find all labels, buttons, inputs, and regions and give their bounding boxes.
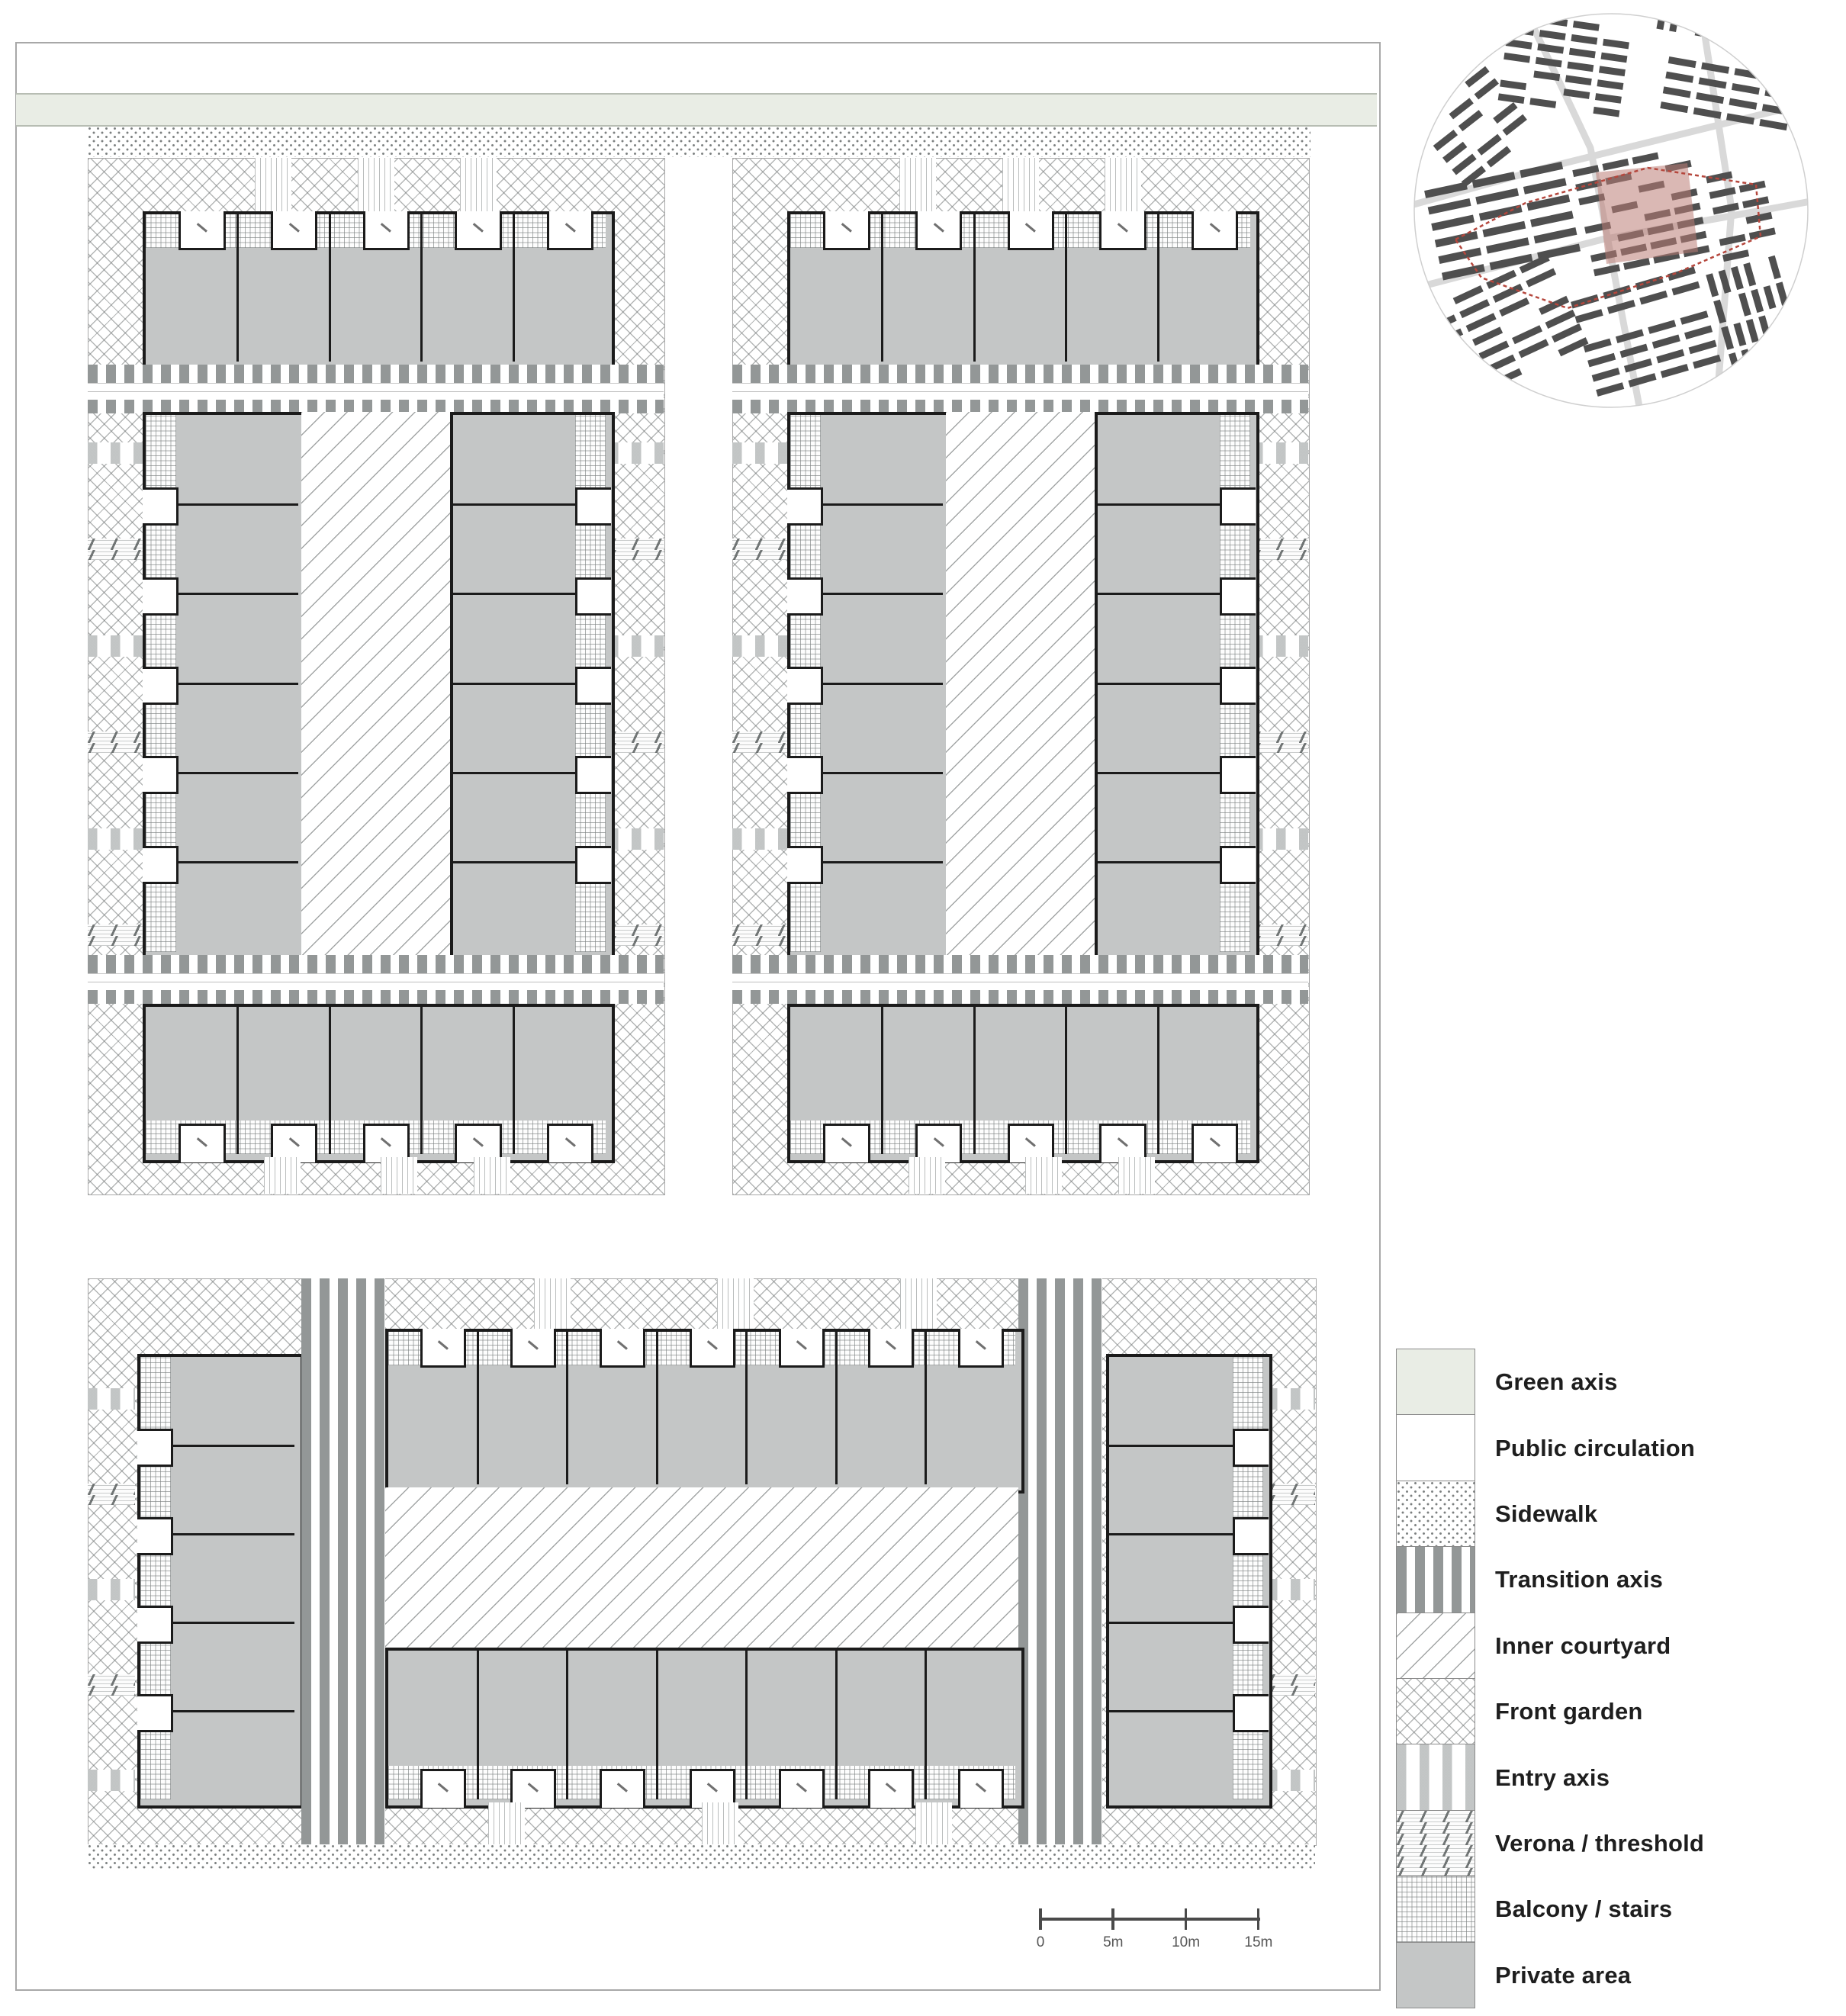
entry-axis-patch [732,828,787,850]
entry-recess [547,211,593,250]
entry-recess [575,577,611,616]
unit-divider [925,1332,927,1484]
entry-path [1002,158,1039,211]
entry-path [702,1802,738,1844]
legend-swatch-pub [1396,1414,1475,1481]
inner-courtyard-upper-right [946,412,1095,955]
entry-tick [976,1783,986,1792]
entry-tick [1025,223,1036,232]
transition-axis [732,365,1308,383]
entry-path [534,1278,571,1329]
legend-item-entry: Entry axis [1396,1744,1838,1810]
entry-axis-patch [609,828,664,850]
verona-threshold-patch [88,924,143,946]
entry-recess [1233,1429,1269,1467]
entry-recess [779,1329,825,1368]
legend-item-verona: Verona / threshold [1396,1811,1838,1876]
entry-recess [1220,667,1256,705]
unit-divider [881,214,883,362]
public-circulation [88,383,664,401]
unit-divider [420,214,423,362]
entry-recess [823,1124,870,1162]
entry-recess [575,487,611,526]
unit-divider [1157,214,1159,362]
entry-tick [438,1783,449,1792]
unit-divider [835,1332,838,1484]
entry-recess [1233,1606,1269,1644]
public-circulation [732,973,1308,992]
entry-tick [197,223,207,232]
entry-recess [137,1606,173,1644]
entry-axis-patch [609,442,664,464]
entry-recess [600,1769,645,1808]
unit-divider [329,214,331,362]
scale-label: 5m [1103,1934,1123,1951]
entry-recess [420,1769,466,1808]
entry-path [909,1157,945,1194]
entry-recess [1220,756,1256,794]
sidewalk-band-bottom [88,1844,1315,1870]
legend-swatch-trans [1396,1546,1475,1612]
unit-divider [881,1007,883,1154]
entry-path [358,158,394,211]
entry-axis-patch [732,635,787,657]
row-top-upper-right [787,211,1259,371]
unit-divider [1065,214,1067,362]
verona-threshold-patch [88,539,143,560]
transition-axis [88,365,664,383]
entry-recess [787,667,823,705]
entry-axis-patch [88,828,143,850]
entry-recess [455,211,501,250]
entry-recess [575,846,611,884]
entry-recess [137,1694,173,1732]
entry-path [474,1157,510,1194]
entry-recess [363,211,410,250]
legend-label: Entry axis [1475,1744,1610,1810]
entry-tick [1210,223,1220,232]
entry-tick [617,1783,628,1792]
row-top-lower [385,1329,1024,1494]
entry-tick [934,1137,944,1146]
entry-tick [289,1137,300,1146]
transition-axis [732,990,1308,1004]
entry-tick [565,223,576,232]
site-plan-page: Green axisPublic circulationSidewalkTran… [0,0,1846,2016]
entry-recess [1192,211,1238,250]
unit-divider [566,1651,568,1799]
entry-recess [143,487,178,526]
entry-axis-patch [88,635,143,657]
entry-axis-patch [1253,828,1308,850]
legend-swatch-xh [1396,1678,1475,1744]
unit-divider [925,1651,927,1799]
entry-tick [473,1137,484,1146]
entry-recess [787,487,823,526]
unit-divider [835,1651,838,1799]
entry-recess [868,1329,914,1368]
row-bottom-upper-left [143,1004,615,1163]
unit-divider [1065,1007,1067,1154]
legend-item-sidewalk: Sidewalk [1396,1481,1838,1547]
legend-swatch-green [1396,1349,1475,1415]
entry-path [717,1278,754,1329]
entry-recess [1008,211,1054,250]
entry-recess [690,1329,735,1368]
inner-courtyard-upper-left [301,412,450,955]
context-map [1411,11,1811,410]
inner-courtyard-lower [385,1487,1018,1648]
verona-threshold-patch [1268,1484,1315,1505]
entry-tick [289,223,300,232]
legend-swatch-priv [1396,1942,1475,2008]
entry-recess [1220,577,1256,616]
entry-tick [886,1783,896,1792]
verona-threshold-patch [609,731,664,753]
balcony-stairs-strip [1233,1357,1263,1799]
entry-path [1118,1157,1155,1194]
entry-recess [787,846,823,884]
entry-recess [868,1769,914,1808]
unit-divider [1157,1007,1159,1154]
entry-tick [707,1783,718,1792]
legend-swatch-entry [1396,1744,1475,1810]
wing-right-upper-right [1095,412,1259,961]
unit-divider [513,1007,515,1154]
legend-item-priv: Private area [1396,1943,1838,2008]
entry-recess [958,1329,1004,1368]
legend-label: Green axis [1475,1349,1618,1415]
entry-tick [381,1137,391,1146]
wing-right-lower [1106,1354,1272,1809]
entry-tick [565,1137,576,1146]
entry-recess [1099,211,1146,250]
entry-recess [1192,1124,1238,1162]
legend-label: Verona / threshold [1475,1811,1704,1876]
entry-recess [143,577,178,616]
entry-axis-patch [88,442,143,464]
entry-recess [271,211,317,250]
entry-recess [420,1329,466,1368]
verona-threshold-patch [732,731,787,753]
entry-tick [976,1340,986,1349]
entry-tick [707,1340,718,1349]
verona-threshold-patch [88,1674,135,1696]
entry-tick [886,1340,896,1349]
entry-path [899,158,936,211]
unit-divider [420,1007,423,1154]
entry-tick [381,223,391,232]
entry-recess [137,1517,173,1555]
legend-item-xh: Front garden [1396,1679,1838,1744]
entry-tick [617,1340,628,1349]
unit-divider [566,1332,568,1484]
unit-divider [745,1332,748,1484]
transition-axis [88,990,664,1004]
green-axis-band [16,93,1377,127]
legend-label: Inner courtyard [1475,1613,1671,1679]
entry-recess [575,667,611,705]
entry-recess [1233,1694,1269,1732]
scale-tick [1185,1908,1188,1930]
legend-label: Sidewalk [1475,1481,1597,1547]
entry-path [915,1802,952,1844]
balcony-stairs-strip [140,1357,171,1799]
entry-path [255,158,291,211]
entry-recess [779,1769,825,1808]
entry-axis-patch [88,1388,135,1410]
unit-divider [745,1651,748,1799]
entry-axis-patch [1268,1388,1315,1410]
transition-axis-vertical [1018,1278,1102,1844]
legend-label: Private area [1475,1943,1631,2008]
verona-threshold-patch [1253,924,1308,946]
street-centerline [732,982,1308,982]
entry-path [488,1802,525,1844]
entry-recess [143,667,178,705]
legend-label: Public circulation [1475,1415,1695,1481]
entry-path [264,1157,301,1194]
legend-swatch-balc [1396,1876,1475,1942]
verona-threshold-patch [609,539,664,560]
public-circulation [88,973,664,992]
legend-swatch-sidewalk [1396,1481,1475,1547]
verona-threshold-patch [1253,731,1308,753]
entry-axis-patch [88,1579,135,1600]
unit-divider [477,1651,479,1799]
entry-axis-patch [1253,635,1308,657]
public-circulation [732,383,1308,401]
scale-label: 10m [1172,1934,1200,1951]
legend-label: Balcony / stairs [1475,1876,1672,1942]
entry-axis-patch [88,1770,135,1791]
entry-tick [841,1137,852,1146]
scale-tick [1039,1908,1042,1930]
entry-recess [1233,1517,1269,1555]
entry-tick [796,1340,807,1349]
entry-recess [143,846,178,884]
legend-item-court: Inner courtyard [1396,1613,1838,1679]
verona-threshold-patch [88,1484,135,1505]
legend-label: Transition axis [1475,1547,1663,1612]
entry-tick [528,1783,539,1792]
scale-tick [1257,1908,1260,1930]
legend-label: Front garden [1475,1679,1643,1744]
verona-threshold-patch [732,924,787,946]
unit-divider [656,1651,658,1799]
entry-recess [787,756,823,794]
wing-left-upper-right [787,412,952,961]
unit-divider [973,1007,976,1154]
legend-item-trans: Transition axis [1396,1547,1838,1612]
unit-divider [329,1007,331,1154]
entry-tick [528,1340,539,1349]
entry-tick [796,1783,807,1792]
entry-axis-patch [1253,442,1308,464]
entry-axis-patch [1268,1579,1315,1600]
wing-left-lower [137,1354,304,1809]
entry-path [1105,158,1141,211]
entry-tick [934,223,944,232]
legend-item-green: Green axis [1396,1349,1838,1415]
entry-path [1025,1157,1062,1194]
entry-axis-patch [732,442,787,464]
unit-divider [236,214,239,362]
entry-recess [823,211,870,250]
entry-axis-patch [1268,1770,1315,1791]
verona-threshold-patch [609,924,664,946]
entry-path [460,158,497,211]
entry-tick [1025,1137,1036,1146]
entry-path [900,1278,937,1329]
row-bottom-lower [385,1648,1024,1809]
entry-recess [600,1329,645,1368]
unit-divider [656,1332,658,1484]
entry-tick [1210,1137,1220,1146]
legend-item-balc: Balcony / stairs [1396,1876,1838,1942]
legend-item-pub: Public circulation [1396,1415,1838,1481]
entry-recess [915,211,962,250]
entry-recess [547,1124,593,1162]
entry-recess [787,577,823,616]
unit-divider [236,1007,239,1154]
row-top-upper-left [143,211,615,371]
entry-recess [137,1429,173,1467]
entry-tick [841,223,852,232]
legend: Green axisPublic circulationSidewalkTran… [1396,1349,1838,2008]
verona-threshold-patch [88,731,143,753]
wing-right-upper-left [450,412,615,961]
transition-axis [88,955,664,973]
verona-threshold-patch [1268,1674,1315,1696]
verona-threshold-patch [732,539,787,560]
entry-recess [575,756,611,794]
entry-axis-patch [609,635,664,657]
legend-swatch-verona [1396,1810,1475,1876]
entry-tick [1118,1137,1128,1146]
sidewalk-band-top [88,127,1311,157]
unit-divider [513,214,515,362]
entry-recess [1220,846,1256,884]
scale-label: 0 [1037,1934,1045,1951]
street-centerline [732,391,1308,392]
entry-recess [510,1329,556,1368]
scale-bar-line [1039,1918,1260,1921]
transition-axis [732,955,1308,973]
scale-tick [1111,1908,1114,1930]
entry-tick [473,223,484,232]
scale-label: 15m [1244,1934,1272,1951]
entry-recess [1220,487,1256,526]
wing-left-upper-left [143,412,307,961]
legend-swatch-court [1396,1612,1475,1679]
entry-tick [438,1340,449,1349]
entry-tick [197,1137,207,1146]
entry-recess [178,211,225,250]
verona-threshold-patch [1253,539,1308,560]
transition-axis-vertical [301,1278,385,1844]
entry-recess [178,1124,225,1162]
row-bottom-upper-right [787,1004,1259,1163]
entry-tick [1118,223,1128,232]
entry-recess [143,756,178,794]
street-centerline [88,982,664,982]
street-centerline [88,391,664,392]
unit-divider [477,1332,479,1484]
entry-recess [958,1769,1004,1808]
unit-divider [973,214,976,362]
entry-path [381,1157,417,1194]
